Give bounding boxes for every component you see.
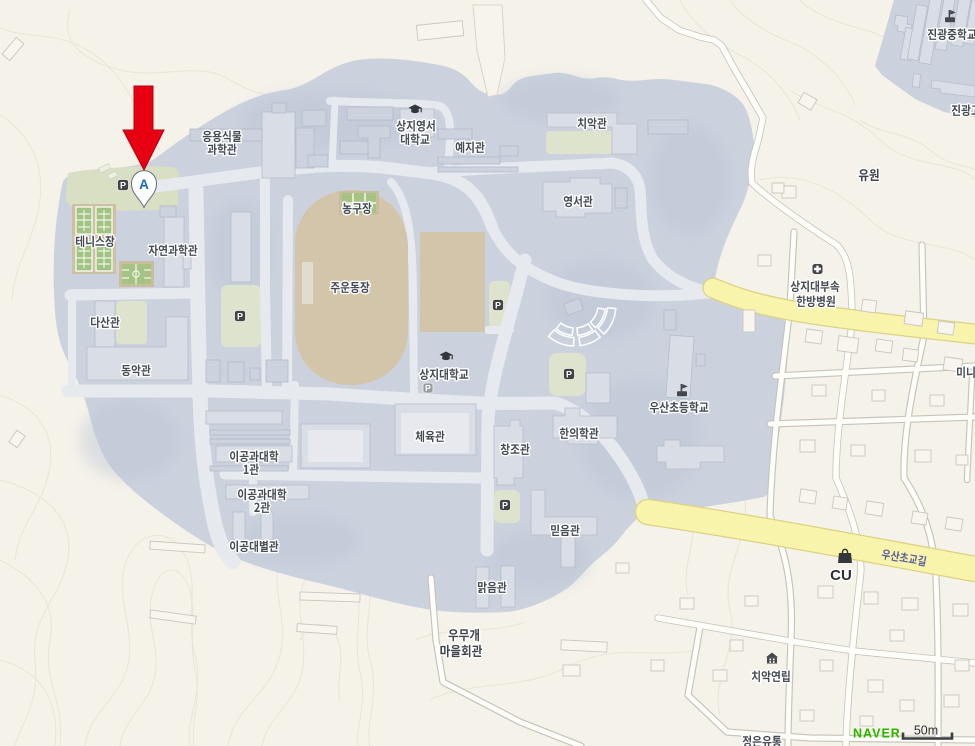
- svg-text:A: A: [139, 177, 149, 192]
- svg-text:NAVER: NAVER: [853, 727, 901, 741]
- svg-text:CU: CU: [830, 567, 852, 584]
- svg-text:50m: 50m: [914, 724, 938, 738]
